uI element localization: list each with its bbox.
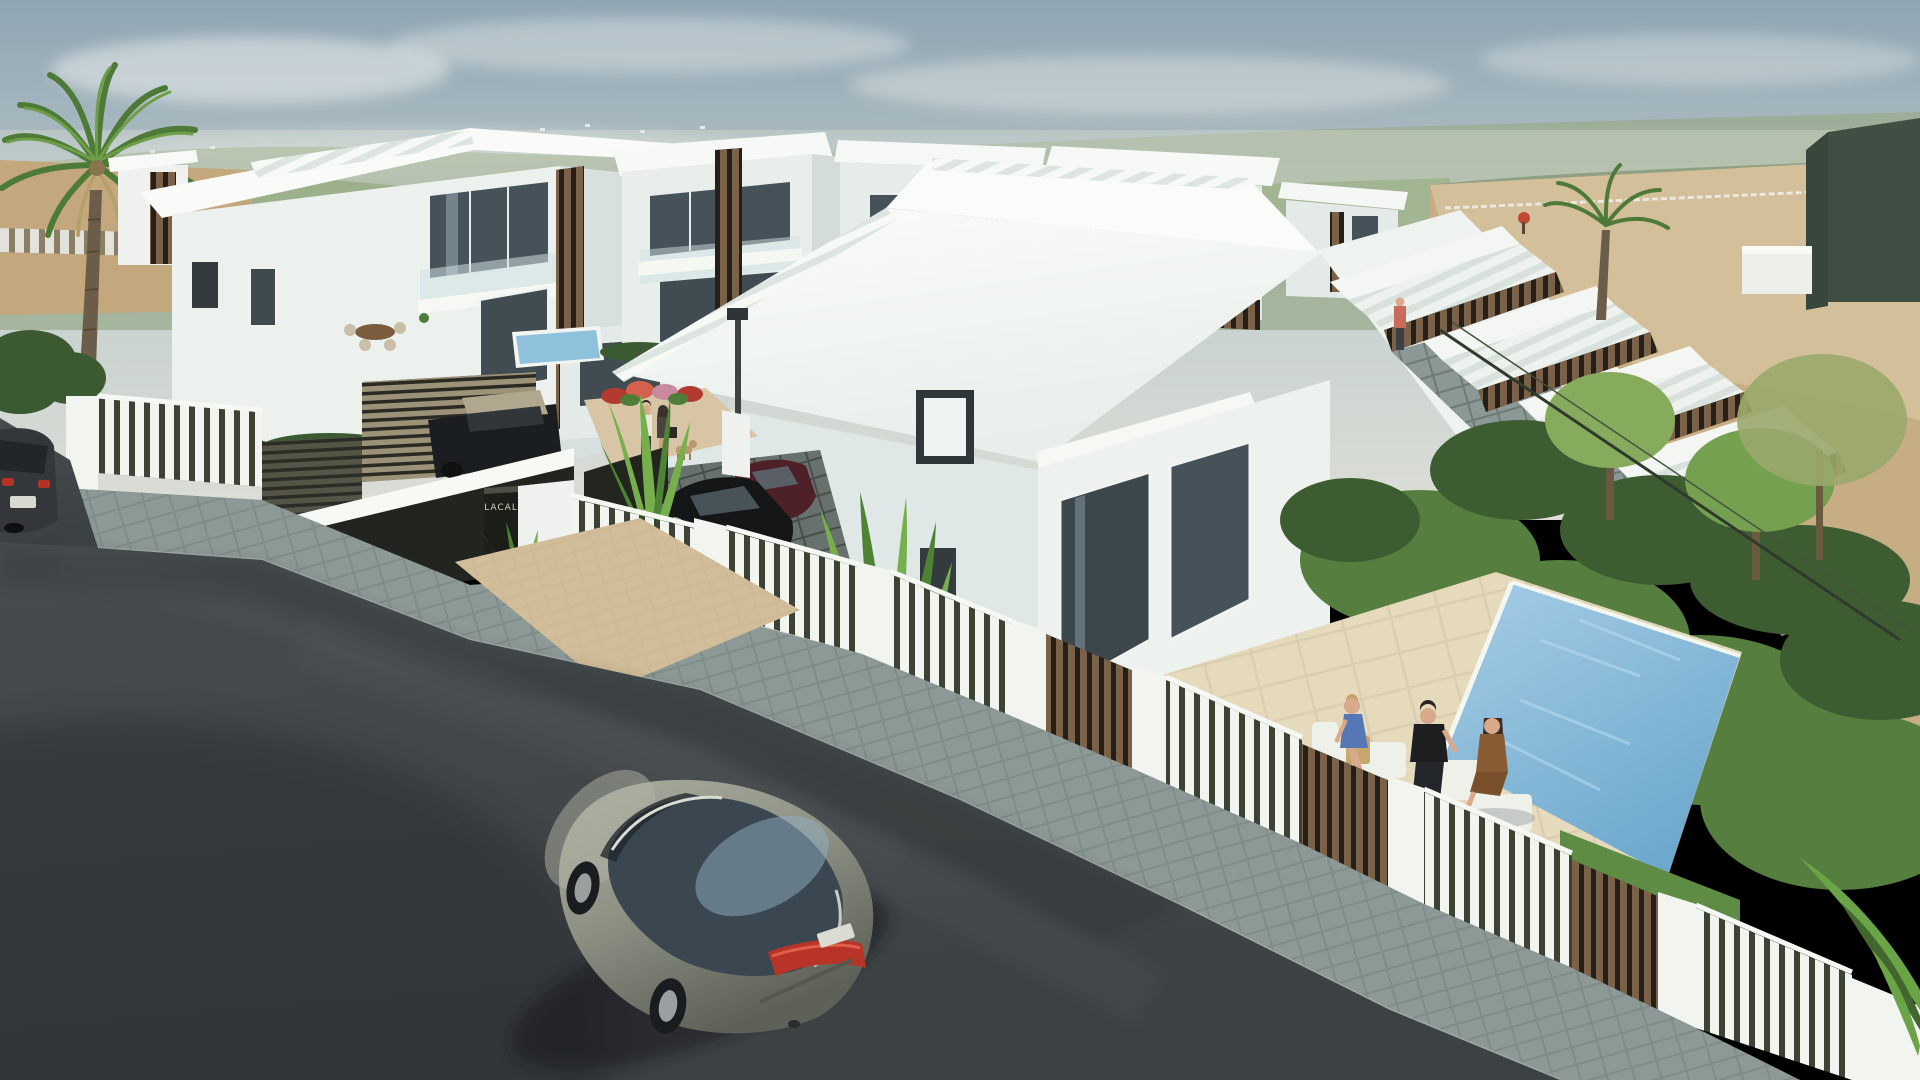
fence-pickets: [98, 396, 262, 487]
villa-a-window: [250, 268, 276, 326]
left-exiting-car: [0, 428, 58, 533]
central-window-upper: [916, 390, 974, 464]
villa-a-door: [192, 262, 218, 308]
wall-pillar: [1388, 776, 1424, 906]
privacy-wall-green: [1806, 118, 1920, 310]
palm-crown-center: [89, 160, 105, 176]
small-white-structure: [1742, 246, 1812, 294]
gate-plaque: LACAL: [484, 503, 518, 513]
license-plate: [10, 496, 36, 508]
wall-pillar: [1658, 892, 1696, 1032]
wall-pillar: [858, 562, 890, 668]
entry-white-pillar: [722, 410, 750, 478]
architectural-render: LACAL: [0, 0, 1920, 1080]
